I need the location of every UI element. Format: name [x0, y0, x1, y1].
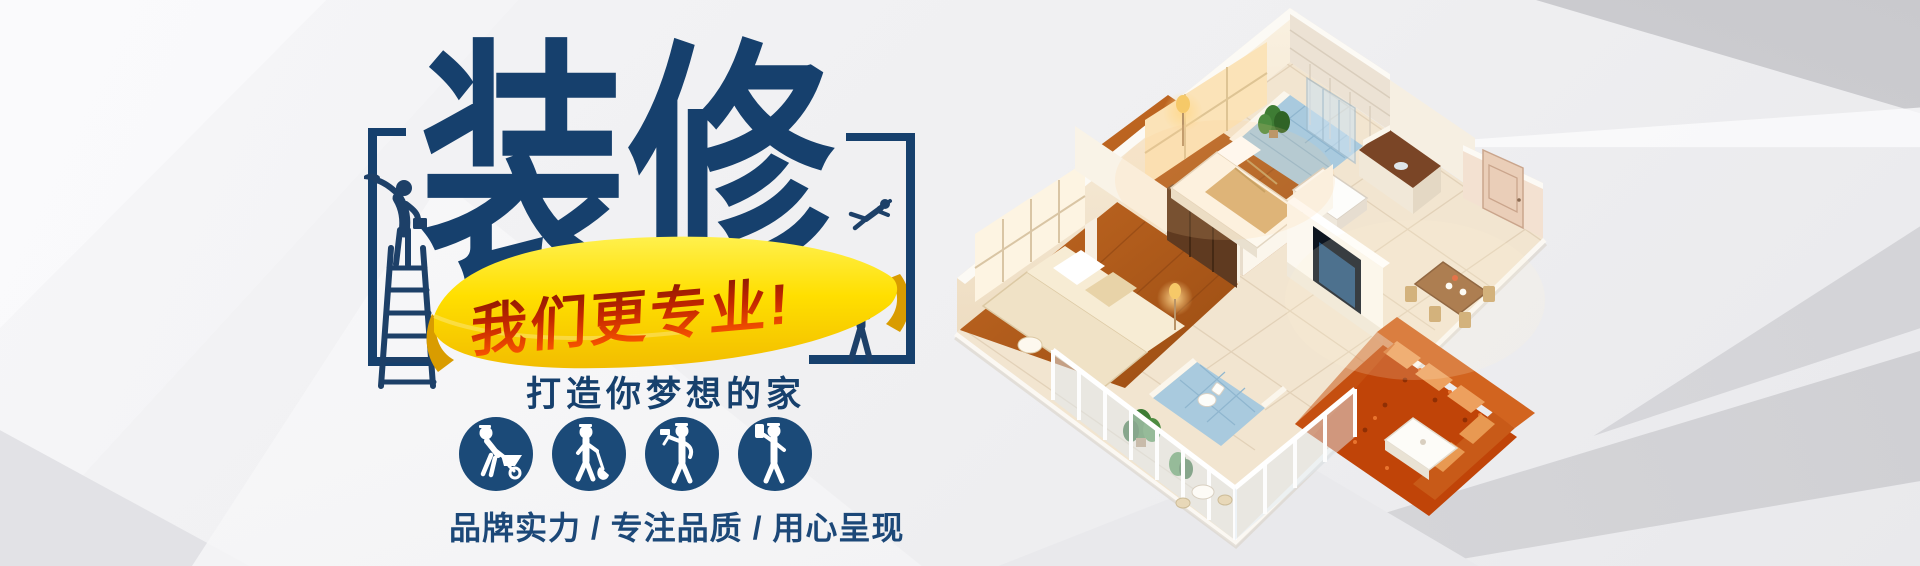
worker-wheelbarrow-icon	[459, 417, 533, 491]
worker-hammer-icon	[645, 417, 719, 491]
banner-subtitle: 打造你梦想的家	[526, 366, 806, 417]
ribbon-banner: 我们更专业!	[424, 232, 906, 374]
worker-shovel-icon	[552, 417, 626, 491]
isometric-apartment-3d-render	[935, 0, 1565, 566]
promo-banner: 装修	[0, 0, 1920, 566]
banner-tagline: 品牌实力 / 专注品质 / 用心呈现	[449, 503, 904, 549]
feature-icon-row	[459, 417, 812, 491]
worker-paint-icon	[738, 417, 812, 491]
